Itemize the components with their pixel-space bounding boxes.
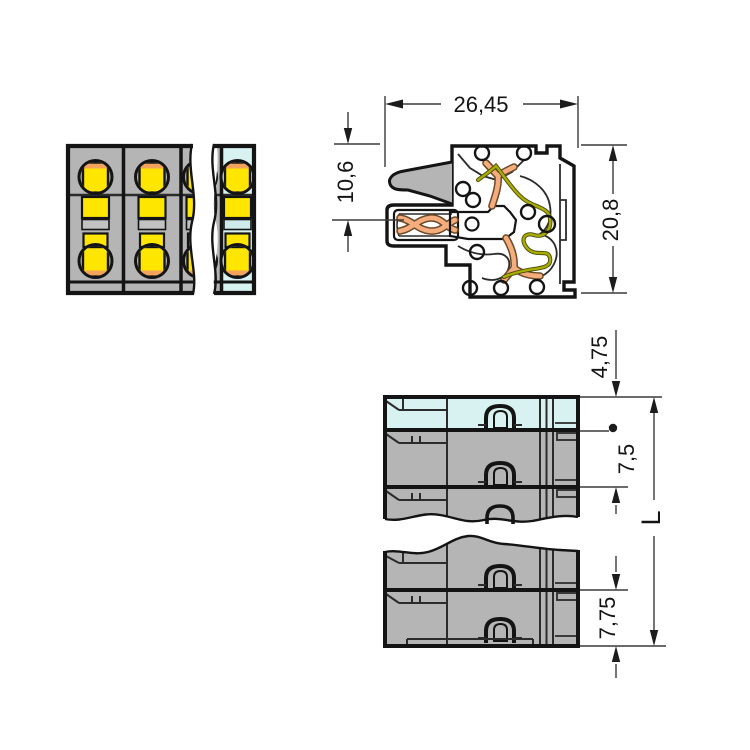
dim-end-clearance: 4,75: [587, 330, 620, 397]
front-view: [68, 142, 254, 297]
dim-label-section-width: 26,45: [453, 92, 508, 117]
plan-view: [379, 397, 584, 646]
dim-label-pole-pitch: 7,5: [614, 444, 639, 475]
front-pole-end: [221, 161, 254, 278]
dim-section-height: 20,8: [581, 145, 627, 293]
dim-pole-pitch: 7,5: [609, 424, 639, 514]
dim-end-pole-pitch: 7,75: [595, 556, 620, 678]
dim-section-width: 26,45: [385, 92, 578, 167]
dim-label-total-length: L: [636, 510, 666, 525]
front-pole-2: [136, 161, 169, 278]
busbar-hole: [466, 218, 479, 231]
dimension-origin-dot: [609, 424, 617, 432]
front-pole-1: [79, 161, 112, 278]
dim-label-section-height: 20,8: [598, 199, 623, 242]
dim-label-end-clearance: 4,75: [587, 336, 612, 379]
busbar: [450, 206, 516, 239]
dim-label-end-pole-pitch: 7,75: [595, 597, 620, 640]
connector-technical-drawing: 26,45 10,6 20,8 4,75: [0, 0, 750, 750]
drawing-canvas: 26,45 10,6 20,8 4,75: [0, 0, 750, 750]
dim-total-length: L: [636, 397, 666, 646]
dim-label-wire-entry-height: 10,6: [333, 161, 358, 204]
section-view: [387, 146, 575, 297]
